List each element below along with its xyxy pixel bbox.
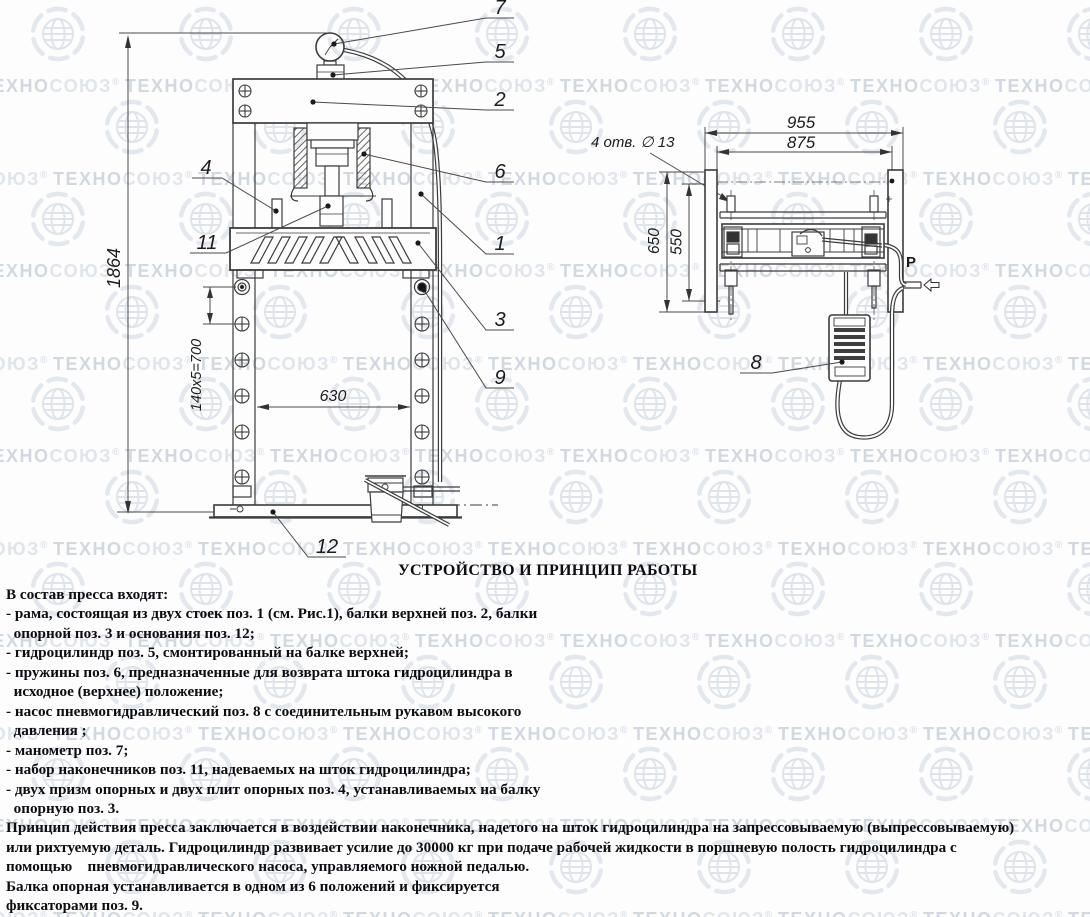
callout-springs-label: 6 — [494, 161, 506, 183]
section-title: УСТРОЙСТВО И ПРИНЦИП РАБОТЫ — [398, 562, 697, 580]
text-line: опорной поз. 3 и основания поз. 12; — [6, 624, 1014, 643]
callout-gauge-label: 7 — [494, 0, 506, 19]
text-line: исходное (верхнее) положение; — [6, 682, 1014, 701]
globe-icon — [1062, 557, 1090, 621]
callout-frame-label: 1 — [494, 233, 505, 255]
text-line: или рихтуемую деталь. Гидроцилиндр разви… — [6, 838, 1014, 857]
description-text: В состав пресса входят:- рама, состоящая… — [6, 585, 1014, 916]
holes-note-label: 4 отв. ∅ 13 — [591, 134, 675, 151]
text-line: Принцип действия пресса заключается в во… — [6, 818, 1014, 837]
text-line: Балка опорная устанавливается в одном из… — [6, 877, 1014, 896]
text-line: - манометр поз. 7; — [6, 741, 1014, 760]
text-line: - рама, состоящая из двух стоек поз. 1 (… — [6, 604, 1014, 623]
text-line: В состав пресса входят: — [6, 585, 1014, 604]
text-line: опорную поз. 3. — [6, 799, 1014, 818]
text-line: - гидроцилиндр поз. 5, смонтированный на… — [6, 643, 1014, 662]
text-line: давления ; — [6, 721, 1014, 740]
callout-support-plates-label: 4 — [200, 157, 211, 179]
front-view-drawing — [117, 33, 498, 525]
dim-overall-width-label: 955 — [787, 113, 816, 132]
dim-plate-height-label: 650 — [646, 228, 663, 254]
text-line: помощью пневмогидравлического насоса, уп… — [6, 857, 1014, 876]
callout-tip-label: 11 — [197, 232, 218, 254]
dim-inner-width-label: 875 — [787, 133, 816, 152]
drawing-labels: 1864 140x5=700 630 7 5 2 6 1 3 9 4 11 12… — [104, 0, 916, 558]
dim-between-columns-label: 630 — [320, 388, 347, 405]
top-view-drawing — [650, 127, 939, 437]
callout-base-label: 12 — [316, 536, 338, 558]
pressure-port-label: P — [906, 254, 916, 271]
text-line: - пружины поз. 6, предназначенные для во… — [6, 663, 1014, 682]
dim-inner-height-label: 550 — [669, 229, 686, 255]
text-line: - набор наконечников поз. 11, надеваемых… — [6, 760, 1014, 779]
dim-overall-height-label: 1864 — [104, 248, 124, 288]
callout-fixator-label: 9 — [494, 367, 505, 389]
dim-hole-pitch-label: 140x5=700 — [189, 339, 205, 411]
text-line: фиксаторами поз. 9. — [6, 896, 1014, 915]
callout-support-beam-label: 3 — [494, 309, 505, 331]
callout-pump-label: 8 — [750, 352, 761, 374]
text-line: - двух призм опорных и двух плит опорных… — [6, 780, 1014, 799]
globe-icon — [1062, 742, 1090, 806]
callout-top-beam-label: 2 — [493, 89, 505, 111]
manual-page: ТЕХНОСОЮЗ®ТЕХНОСОЮЗ®ТЕХНОСОЮЗ®ТЕХНОСОЮЗ®… — [0, 0, 1090, 917]
watermark-brand-text: ТЕХНОСОЮЗ® — [1068, 909, 1090, 917]
technical-drawing: 1864 140x5=700 630 7 5 2 6 1 3 9 4 11 12… — [0, 0, 1090, 562]
text-line: - насос пневмогидравлический поз. 8 с со… — [6, 702, 1014, 721]
callout-cylinder-label: 5 — [494, 41, 506, 63]
